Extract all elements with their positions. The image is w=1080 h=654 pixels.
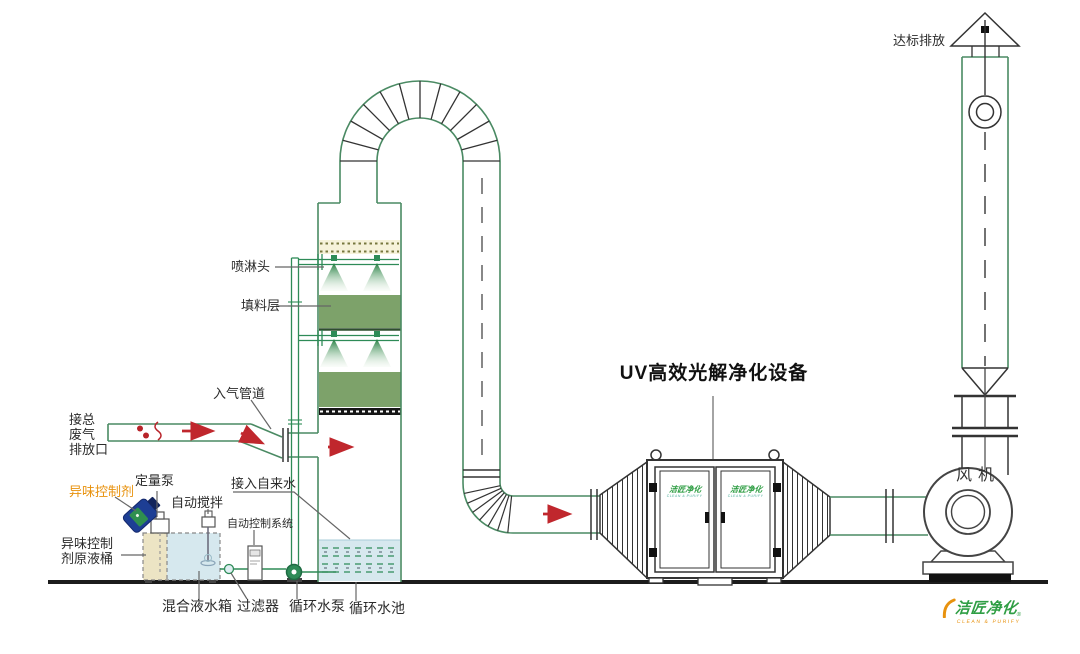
mixing-tank-label: 混合液水箱 [162,599,232,614]
discharge-label: 达标排放 [893,33,945,48]
waste-inlet-duct [108,422,318,462]
circulating-pool-label: 循环水池 [349,601,405,616]
packing-layer-2 [319,372,401,407]
uv-title: UV高效光解净化设备 [600,366,828,381]
door-logo-left: 洁匠净化 CLEAN & PURIFY [662,486,707,498]
fan-unit [923,436,1013,582]
odor-tank-label: 异味控制 剂原液桶 [61,536,113,566]
auto-control-label: 自动控制系统 [227,517,293,532]
packing-layer-1 [319,295,401,328]
brand-logo: 洁匠净化 ® CLEAN & PURIFY [941,597,1054,625]
outlet-transition [783,462,830,578]
filter-icon [225,565,234,574]
filter-label: 过滤器 [237,599,279,614]
pool-water [319,540,400,581]
packing-layer-label: 填料层 [241,298,280,313]
waste-inlet-label: 接总 废气 排放口 [69,412,108,457]
metering-pump-label: 定量泵 [135,473,174,488]
diagram-linework [0,0,1080,654]
auto-stirrer-label: 自动搅拌 [171,495,223,510]
inlet-transition [600,462,647,578]
circulating-pump-icon [287,565,303,583]
odor-agent-label: 异味控制剂 [69,484,134,499]
circulating-pump-label: 循环水泵 [289,599,345,614]
control-box-icon [248,546,262,580]
chimney [951,13,1019,436]
tap-water-label: 接入自来水 [231,476,296,491]
spray-head-label: 喷淋头 [231,259,270,274]
process-diagram: 达标排放 UV高效光解净化设备 风机 喷淋头 填料层 入气管道 接总 废气 排放… [0,0,1080,654]
uv-unit [600,450,928,585]
door-logo-right: 洁匠净化 CLEAN & PURIFY [723,486,768,498]
sampling-port-icon [969,96,1001,128]
inlet-duct-label: 入气管道 [213,386,265,401]
fan-label: 风机 [956,468,1000,483]
